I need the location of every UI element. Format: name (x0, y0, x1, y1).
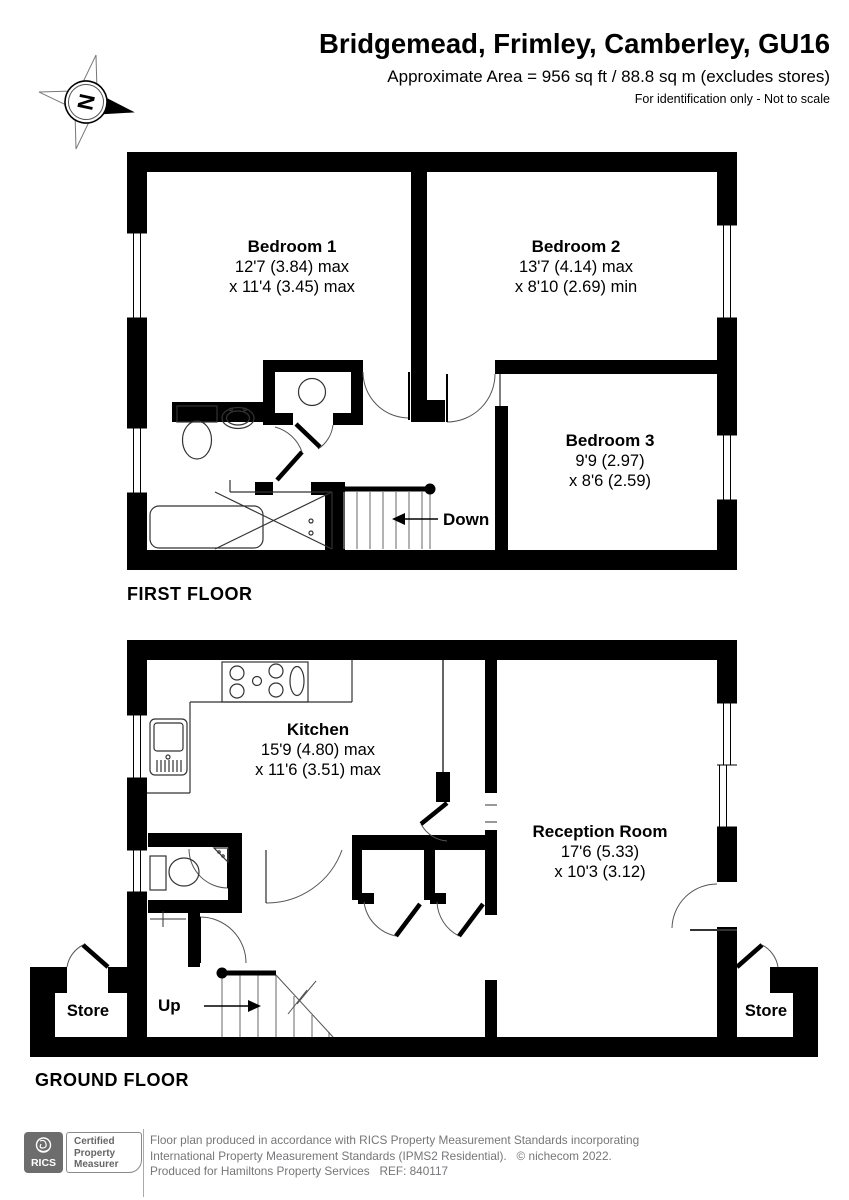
bedroom-3-dim2: x 8'6 (2.59) (566, 471, 655, 491)
bedroom-2-dim1: 13'7 (4.14) max (515, 257, 637, 277)
toilet-icon (183, 421, 212, 459)
bedroom-2-name: Bedroom 2 (515, 237, 637, 257)
first-floor-plan (127, 152, 737, 570)
footer-line-2: International Property Measurement Stand… (150, 1149, 612, 1163)
page-title: Bridgemead, Frimley, Camberley, GU16 (319, 28, 830, 60)
disclaimer-note: For identification only - Not to scale (635, 92, 830, 106)
rics-logo: RICS (24, 1132, 63, 1173)
reception-dim2: x 10'3 (3.12) (532, 862, 667, 882)
first-floor-doors (275, 372, 500, 480)
kitchen-dim1: 15'9 (4.80) max (255, 740, 381, 760)
footer-line-1: Floor plan produced in accordance with R… (150, 1133, 639, 1147)
rics-crest-icon: RICS (24, 1132, 63, 1173)
store-right-label: Store (745, 1002, 787, 1021)
cylinder-icon (299, 379, 326, 406)
down-arrow-icon (392, 513, 438, 525)
up-arrow-icon (204, 1000, 261, 1012)
reception-name: Reception Room (532, 822, 667, 842)
store-left-label: Store (67, 1002, 109, 1021)
reception-dim1: 17'6 (5.33) (532, 842, 667, 862)
floor-plan-page: N (0, 0, 849, 1200)
bath-icon (150, 506, 263, 548)
room-label-bedroom-2: Bedroom 2 13'7 (4.14) max x 8'10 (2.69) … (515, 237, 637, 297)
bedroom-3-name: Bedroom 3 (566, 431, 655, 451)
kitchen-dim2: x 11'6 (3.51) max (255, 760, 381, 780)
corner-basin-icon (214, 848, 228, 862)
first-floor-label: FIRST FLOOR (127, 584, 253, 605)
certified-property-measurer-badge: Certified Property Measurer (66, 1132, 142, 1173)
first-floor-stairs (344, 484, 438, 550)
compass-icon: N (29, 45, 143, 159)
footer-line-3: Produced for Hamiltons Property Services… (150, 1164, 448, 1178)
toilet-icon (169, 858, 199, 886)
bedroom-2-dim2: x 8'10 (2.69) min (515, 277, 637, 297)
hob-icon (222, 662, 308, 702)
badge-line-2: Property (74, 1148, 141, 1160)
room-label-bedroom-3: Bedroom 3 9'9 (2.97) x 8'6 (2.59) (566, 431, 655, 491)
bedroom-1-dim2: x 11'4 (3.45) max (229, 277, 355, 297)
room-label-reception: Reception Room 17'6 (5.33) x 10'3 (3.12) (532, 822, 667, 882)
room-label-bedroom-1: Bedroom 1 12'7 (3.84) max x 11'4 (3.45) … (229, 237, 355, 297)
footer-disclaimer: Floor plan produced in accordance with R… (150, 1133, 639, 1180)
stairs-down-label: Down (443, 510, 489, 530)
ground-floor-label: GROUND FLOOR (35, 1070, 189, 1091)
footer-divider (143, 1129, 144, 1197)
rics-logo-text: RICS (31, 1157, 56, 1169)
bedroom-1-name: Bedroom 1 (229, 237, 355, 257)
ground-floor-walls (30, 640, 818, 1057)
first-floor-walls (127, 152, 737, 570)
ground-floor-plan (30, 640, 818, 1057)
kitchen-name: Kitchen (255, 720, 381, 740)
toilet-cistern-icon (150, 856, 166, 890)
ground-floor-stairs (204, 968, 333, 1038)
stairs-up-label: Up (158, 996, 181, 1016)
bedroom-3-dim1: 9'9 (2.97) (566, 451, 655, 471)
ground-floor-doors (67, 803, 778, 967)
badge-line-3: Measurer (74, 1159, 141, 1171)
area-subtitle: Approximate Area = 956 sq ft / 88.8 sq m… (387, 67, 830, 87)
badge-line-1: Certified (74, 1136, 141, 1148)
room-label-kitchen: Kitchen 15'9 (4.80) max x 11'6 (3.51) ma… (255, 720, 381, 780)
bedroom-1-dim1: 12'7 (3.84) max (229, 257, 355, 277)
